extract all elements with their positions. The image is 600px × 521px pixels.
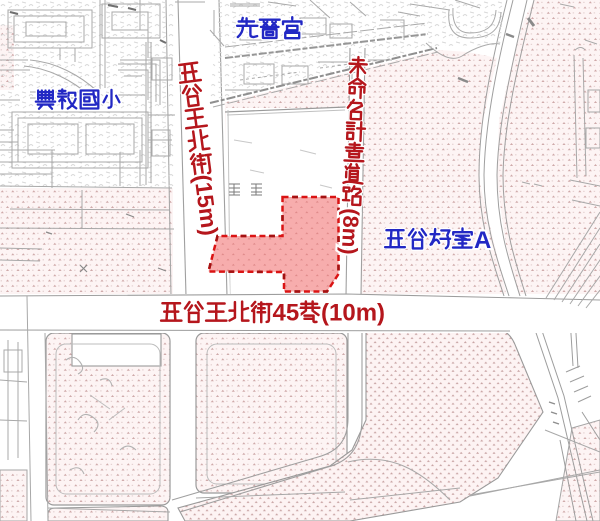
- svg-text:A: A: [474, 227, 491, 254]
- svg-text:(10m): (10m): [321, 300, 385, 327]
- svg-text:(8m): (8m): [337, 208, 364, 255]
- svg-text:45: 45: [273, 300, 300, 327]
